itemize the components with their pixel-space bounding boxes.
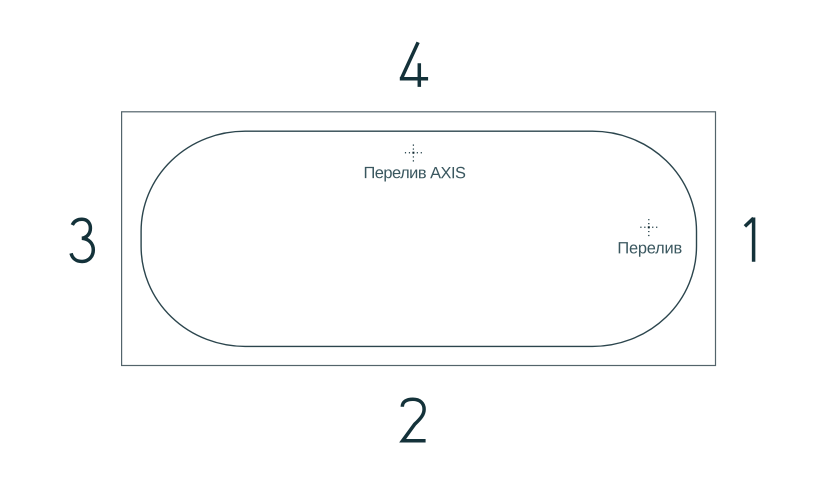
svg-text:Перелив AXIS: Перелив AXIS: [364, 164, 466, 182]
svg-text:Перелив: Перелив: [617, 239, 682, 257]
